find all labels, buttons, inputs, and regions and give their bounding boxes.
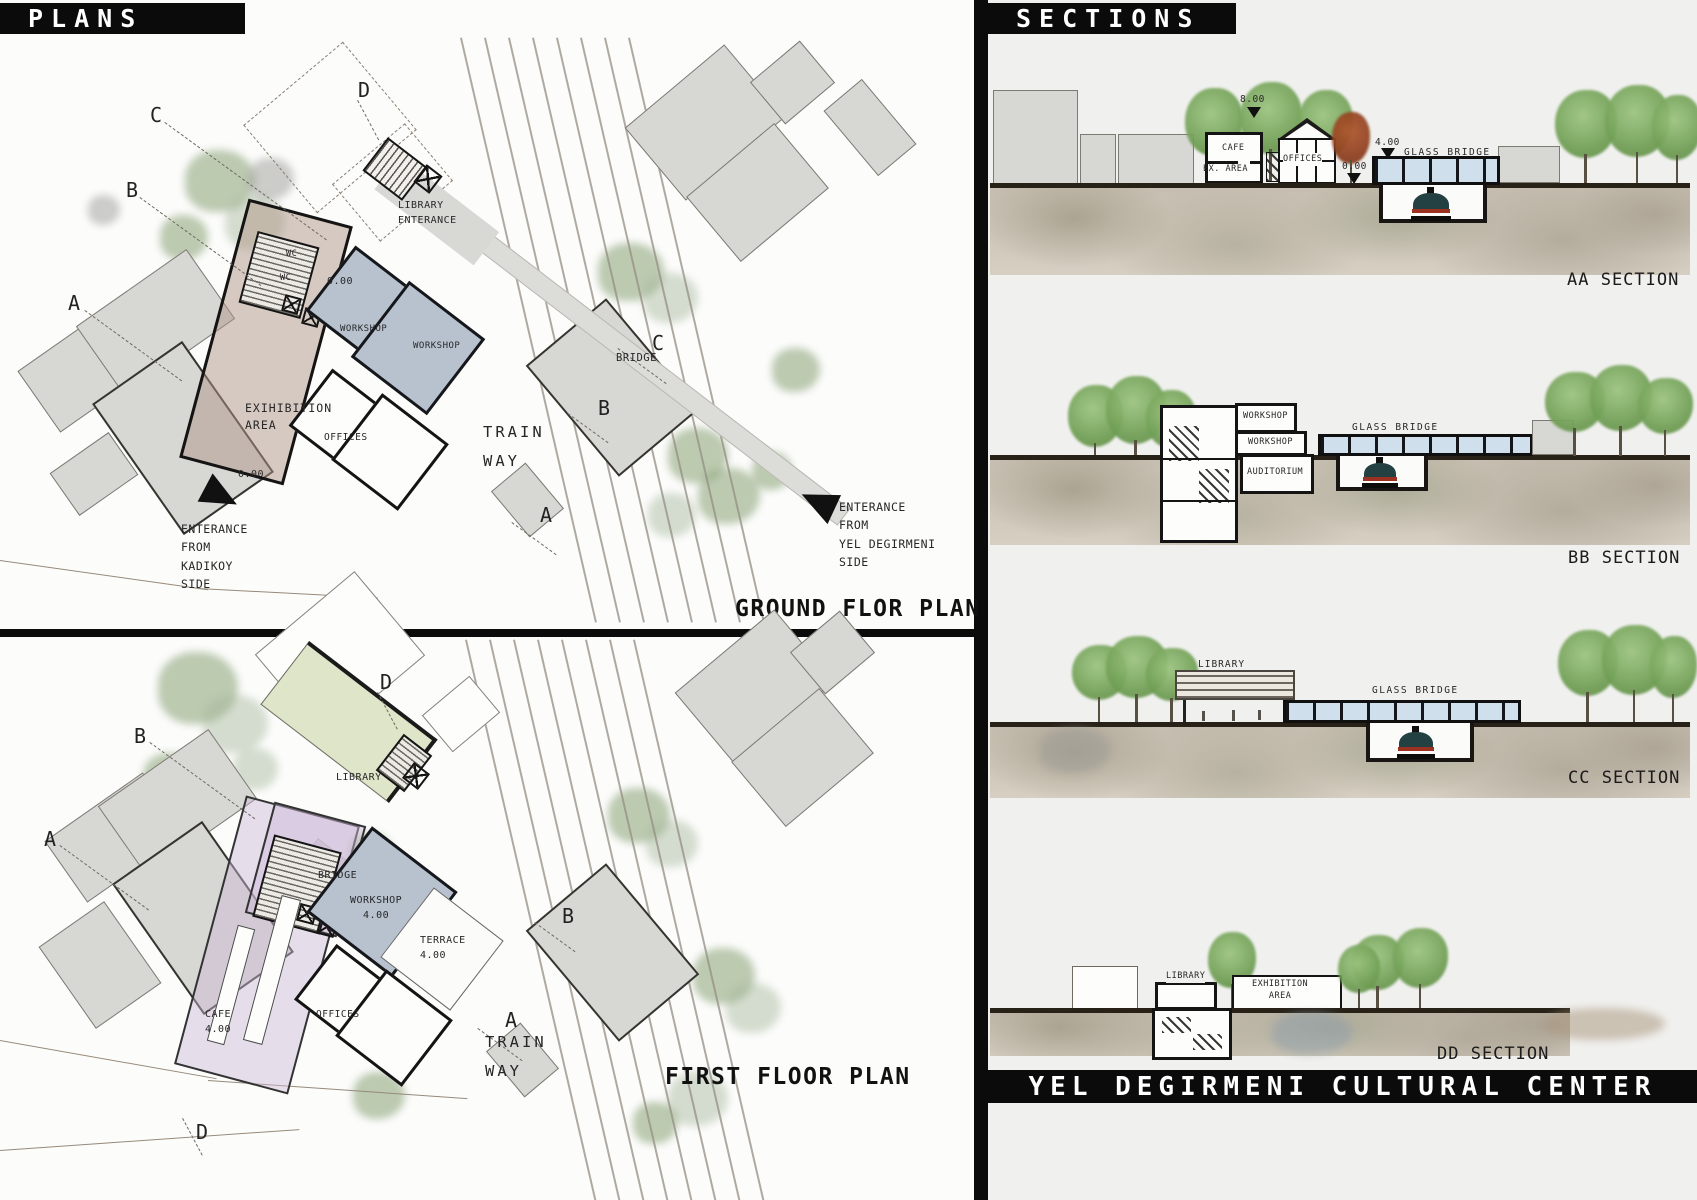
ground-wash <box>990 183 1690 275</box>
section-marker-a: A <box>68 291 80 315</box>
tree-icon <box>1650 636 1697 722</box>
label-aa-ex-area: EX. AREA <box>1203 163 1248 176</box>
floor-line <box>1163 500 1235 502</box>
stair-flight <box>1199 469 1229 503</box>
stair-flight <box>1162 1017 1190 1033</box>
label-workshop: WORKSHOP <box>340 323 387 337</box>
tree-icon <box>1638 378 1693 456</box>
section-marker-b: B <box>562 904 574 928</box>
label-bb-workshop: WORKSHOP <box>1243 410 1288 423</box>
label-offices: OFFICES <box>316 1008 360 1022</box>
tree-blob-icon <box>772 348 820 392</box>
stair-flight <box>1193 1034 1221 1050</box>
tree-icon <box>1652 95 1697 185</box>
aa-cafe-box <box>1205 132 1263 184</box>
train-icon <box>1397 726 1435 759</box>
train-icon <box>1362 457 1398 488</box>
label-aa-offices: OFFICES <box>1283 153 1322 166</box>
person-figure <box>1202 711 1205 721</box>
label-train-way: TRAIN WAY <box>485 1028 547 1087</box>
label-bridge: BRIDGE <box>616 351 657 367</box>
dd-stairs-box <box>1152 1008 1232 1060</box>
glass-bridge <box>1283 700 1521 723</box>
building-shape <box>1118 134 1194 184</box>
label-entrance-kadikoy: ENTERANCE FROM KADIKOY SIDE <box>181 520 248 594</box>
section-marker-d: D <box>380 670 392 694</box>
label-bridge: BRIDGE <box>318 868 357 883</box>
section-marker-a: A <box>540 503 552 527</box>
building-shape <box>993 90 1078 185</box>
tree-blob-icon <box>726 983 781 1033</box>
label-library-entrance: LIBRARY ENTERANCE <box>398 198 457 228</box>
person-figure <box>1258 710 1261 720</box>
section-marker-d: D <box>358 78 370 102</box>
label-cc-glass-bridge: GLASS BRIDGE <box>1372 684 1459 698</box>
tree-blob-icon <box>633 1102 678 1144</box>
first-plan-title: FIRST FLOOR PLAN <box>665 1064 911 1090</box>
cc-section-label: CC SECTION <box>1568 768 1680 788</box>
label-cc-library: LIBRARY <box>1198 658 1245 672</box>
section-marker-b: B <box>598 396 610 420</box>
label-cafe: CAFE 4.00 <box>205 1007 231 1037</box>
label-wc: WC <box>286 248 297 261</box>
dd-section-label: DD SECTION <box>1437 1044 1549 1064</box>
plans-header: PLANS <box>0 3 245 34</box>
bb-section-label: BB SECTION <box>1568 548 1680 568</box>
glass-bridge <box>1372 156 1500 185</box>
label-exhibition-area: EXIHIBITION AREA <box>245 400 332 435</box>
train-icon <box>1411 187 1451 221</box>
label-offices: OFFICES <box>324 431 368 445</box>
glass-bridge <box>1318 434 1533 456</box>
label-entrance-yel: ENTERANCE FROM YEL DEGIRMENI SIDE <box>839 498 936 572</box>
label-wc: WC <box>280 272 291 285</box>
tree-blob-icon <box>648 493 696 537</box>
section-marker-a: A <box>44 827 56 851</box>
road-line <box>0 1129 299 1151</box>
section-marker-b: B <box>126 178 138 202</box>
road-line <box>0 560 208 590</box>
label-library: LIBRARY <box>336 770 382 785</box>
section-marker-c: C <box>150 103 162 127</box>
section-marker-c: C <box>652 331 664 355</box>
bb-stair-tower <box>1160 405 1238 543</box>
label-dd-exhibition: EXHIBITION AREA <box>1252 979 1308 1003</box>
tree-icon <box>1338 945 1380 1011</box>
footer-title-bar: YEL DEGIRMENI CULTURAL CENTER <box>988 1070 1697 1103</box>
label-train-way: TRAIN WAY <box>483 418 545 477</box>
building-outline <box>1072 966 1138 1010</box>
label-level: 0.00 <box>327 274 353 289</box>
section-marker-d: D <box>196 1120 208 1144</box>
cc-library-box <box>1175 670 1295 700</box>
building-shape <box>1498 146 1560 183</box>
label-workshop: WORKSHOP 4.00 <box>350 893 402 923</box>
aa-section-label: AA SECTION <box>1567 270 1679 290</box>
section-marker-b: B <box>134 724 146 748</box>
label-dd-library: LIBRARY <box>1166 970 1205 983</box>
tree-blob-icon <box>88 195 120 225</box>
level-marker-icon <box>1247 107 1261 118</box>
section-marker-a: A <box>505 1008 517 1032</box>
person-figure <box>1232 710 1235 721</box>
label-aa-cafe: CAFE <box>1222 142 1244 155</box>
label-workshop: WORKSHOP <box>413 340 460 354</box>
column-line <box>1183 700 1186 722</box>
label-terrace: TERRACE 4.00 <box>420 933 466 963</box>
label-level: 0.00 <box>238 467 264 482</box>
building-shape <box>1080 134 1116 184</box>
tree-icon <box>1393 928 1448 1011</box>
presentation-board: PLANS SECTIONS <box>0 0 1697 1200</box>
stair-flight <box>1169 426 1199 460</box>
floor-line <box>1250 161 1260 164</box>
floor-line <box>1163 458 1235 460</box>
label-bb-workshop: WORKSHOP <box>1248 436 1293 449</box>
label-aa-lv8: 8.00 <box>1240 93 1265 107</box>
building-shape <box>824 79 917 176</box>
label-bb-auditorium: AUDITORIUM <box>1247 466 1303 479</box>
sections-header: SECTIONS <box>988 3 1236 34</box>
